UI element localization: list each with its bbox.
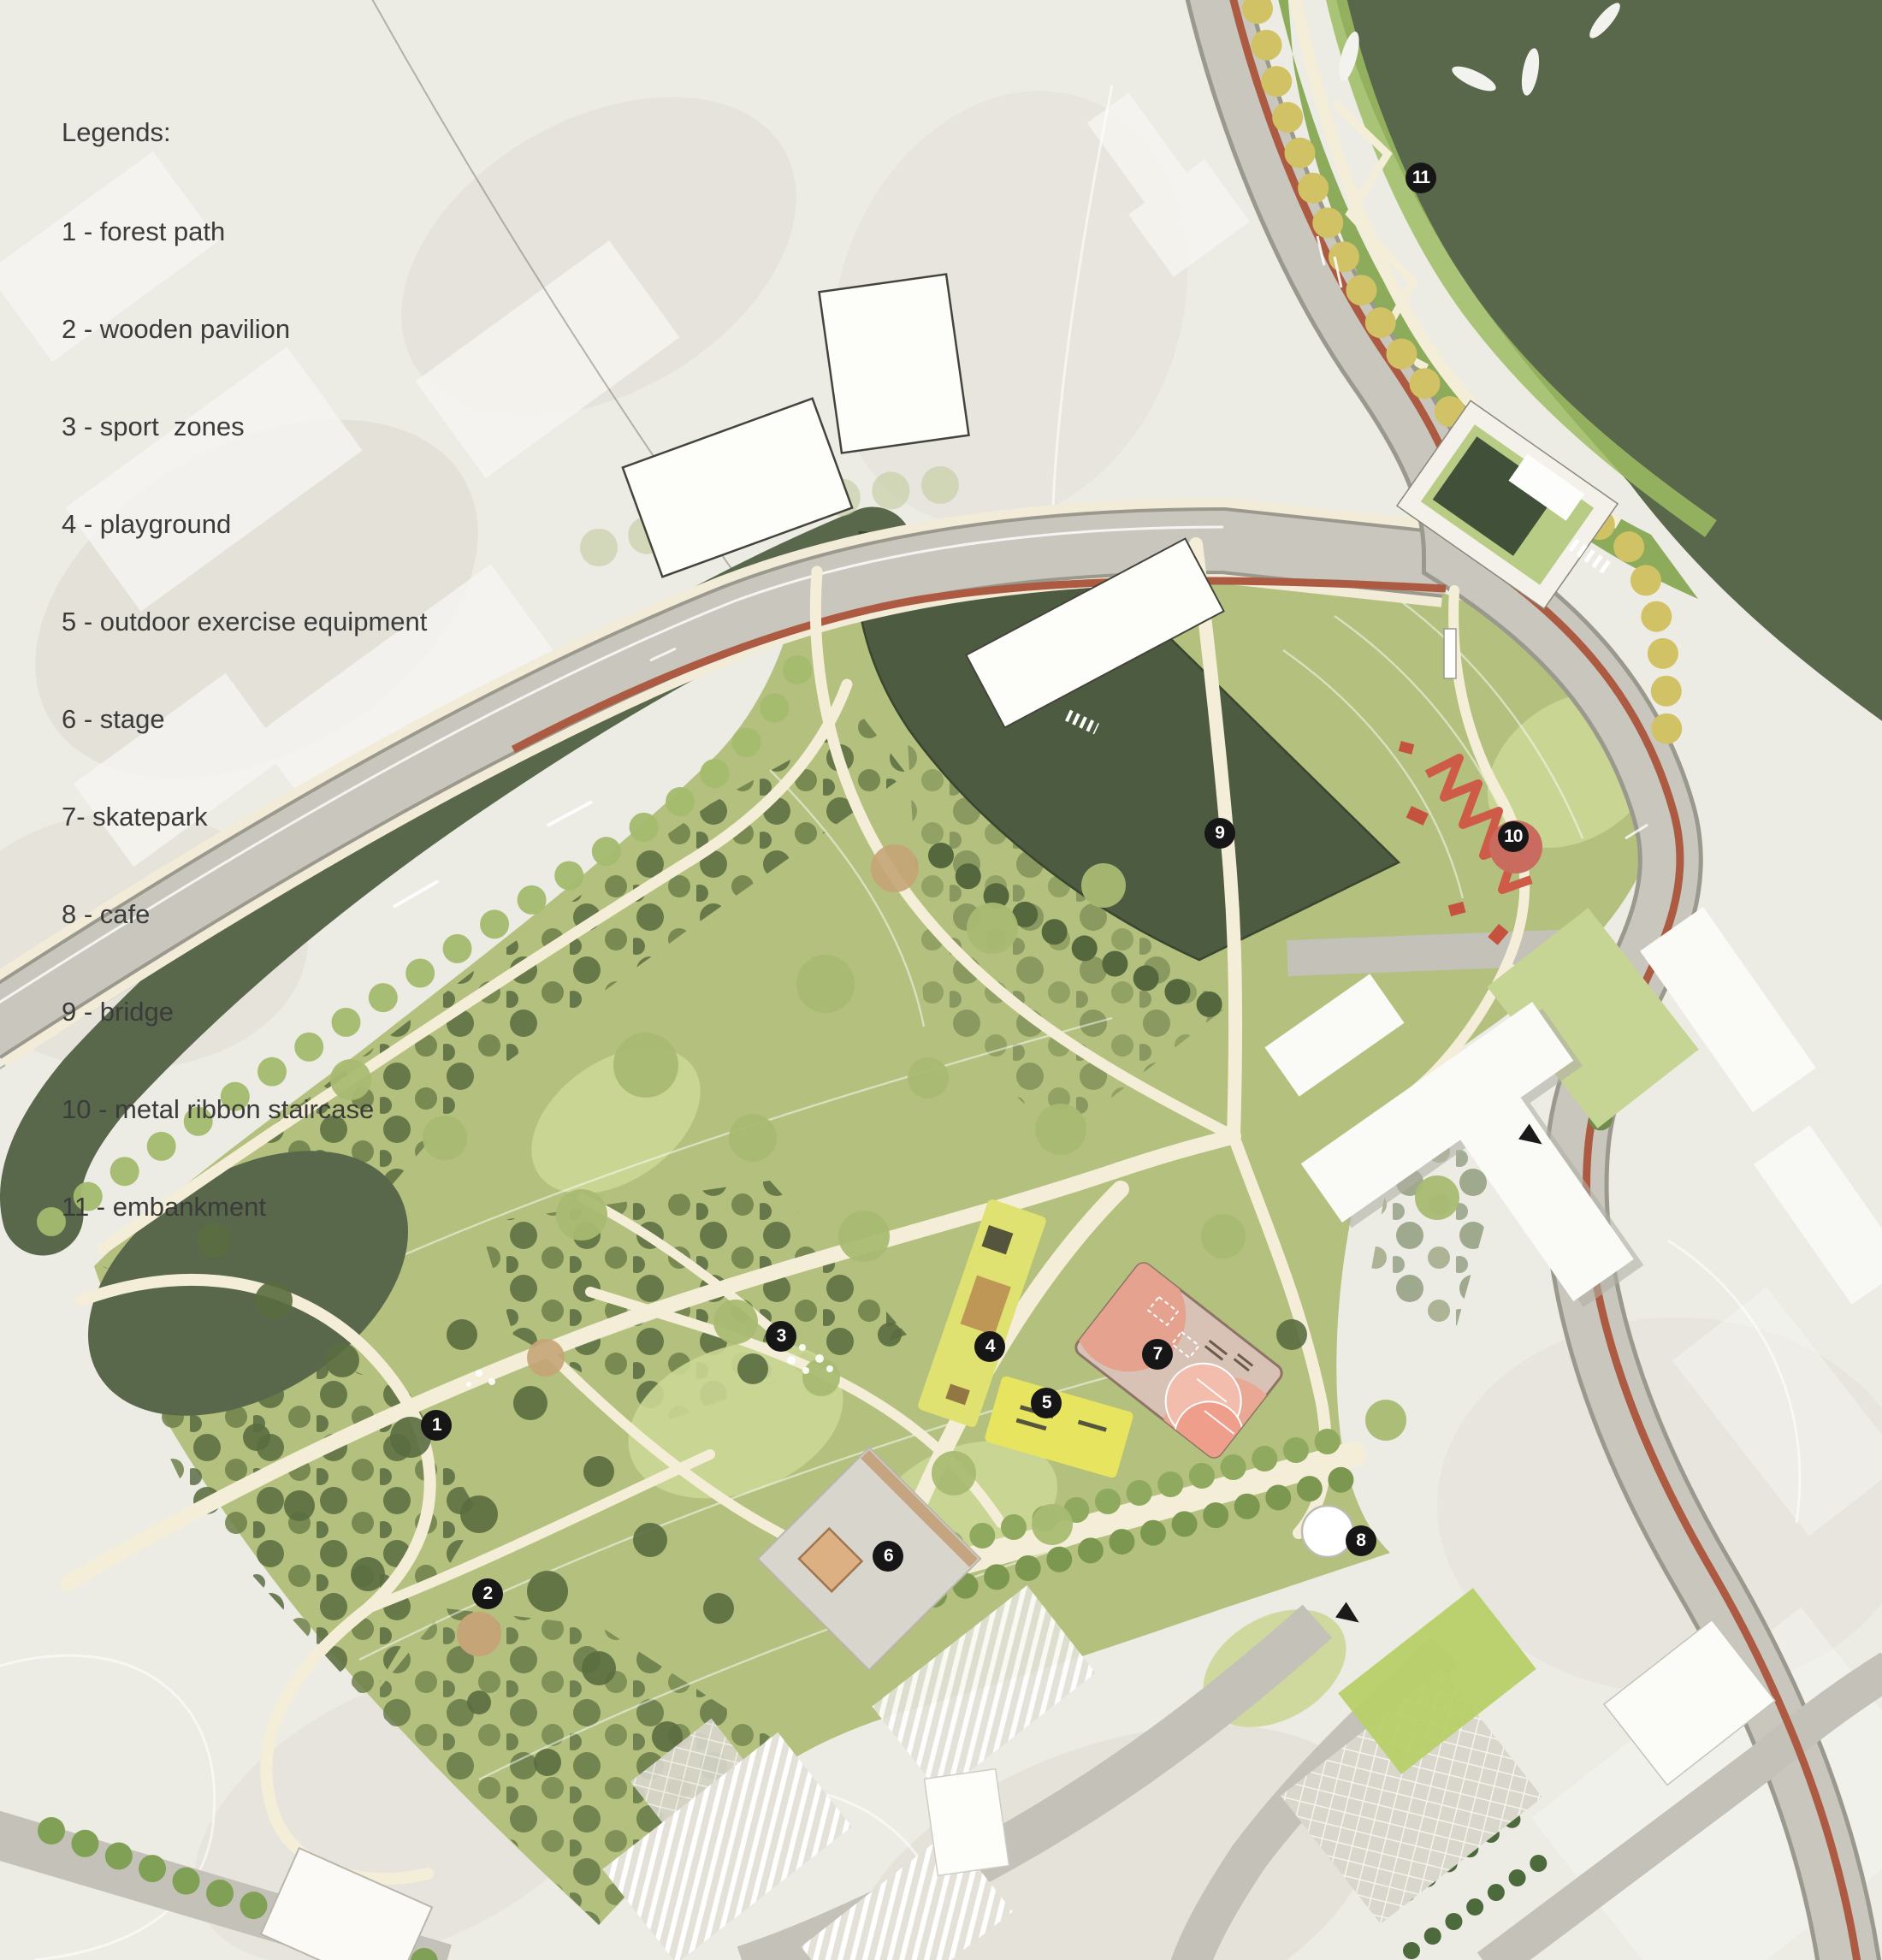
legend-item-10: 10 - metal ribbon staircase [62, 1093, 427, 1126]
legend-item-9: 9 - bridge [62, 996, 427, 1028]
legend-item-1: 1 - forest path [62, 216, 427, 248]
map-marker-2: 2 [472, 1578, 503, 1609]
map-marker-9: 9 [1204, 818, 1235, 849]
legend: Legends: 1 - forest path 2 - wooden pavi… [62, 51, 427, 1256]
cafe-circle [1302, 1506, 1353, 1557]
legend-item-4: 4 - playground [62, 508, 427, 541]
legend-title: Legends: [62, 116, 427, 149]
legend-item-3: 3 - sport zones [62, 411, 427, 443]
map-canvas: Legends: 1 - forest path 2 - wooden pavi… [0, 0, 1882, 1960]
legend-item-11: 11 - embankment [62, 1191, 427, 1223]
map-marker-8: 8 [1346, 1525, 1376, 1556]
map-marker-1: 1 [421, 1410, 452, 1441]
legend-item-5: 5 - outdoor exercise equipment [62, 606, 427, 638]
map-marker-4: 4 [974, 1331, 1005, 1362]
legend-item-6: 6 - stage [62, 703, 427, 736]
legend-item-8: 8 - cafe [62, 898, 427, 931]
legend-item-2: 2 - wooden pavilion [62, 313, 427, 346]
map-marker-10: 10 [1498, 821, 1529, 852]
map-marker-7: 7 [1142, 1339, 1173, 1370]
monument [1444, 629, 1456, 678]
legend-item-7: 7- skatepark [62, 801, 427, 833]
